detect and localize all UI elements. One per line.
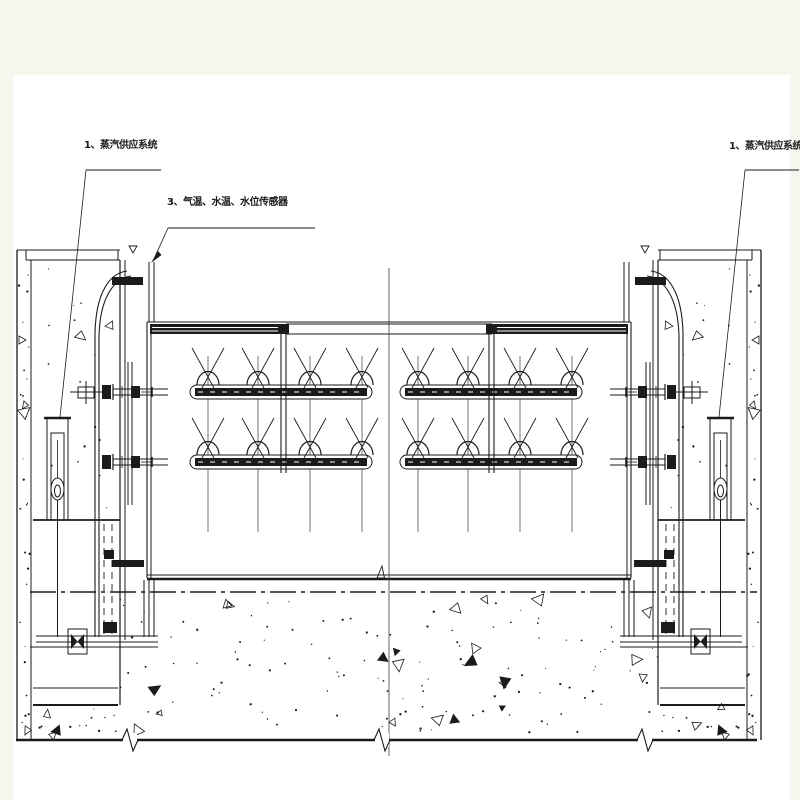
concrete-dot <box>508 668 510 670</box>
concrete-dot <box>211 695 213 697</box>
concrete-dot <box>94 709 95 710</box>
concrete-dot <box>422 690 424 692</box>
concrete-dot <box>510 622 512 624</box>
concrete-dot <box>220 682 222 684</box>
concrete-dot <box>196 663 197 664</box>
concrete-dot <box>451 630 452 631</box>
concrete-dot <box>172 702 173 703</box>
concrete-dot <box>366 631 368 633</box>
concrete-dot <box>648 711 650 713</box>
concrete-dot <box>338 676 339 677</box>
concrete-dot <box>343 674 345 676</box>
label-steam-supply-right: 1、蒸汽供应系统 <box>729 140 800 153</box>
concrete-dot <box>521 674 523 676</box>
concrete-dot <box>342 619 344 621</box>
concrete-dot <box>328 657 330 659</box>
concrete-dot <box>236 658 238 660</box>
pipe-body <box>405 388 577 396</box>
concrete-dot <box>547 724 548 725</box>
concrete-dot <box>196 629 198 631</box>
concrete-dot <box>269 669 271 671</box>
concrete-dot <box>127 672 129 674</box>
concrete-dot <box>545 668 546 669</box>
concrete-dot <box>569 687 571 689</box>
concrete-dot <box>456 641 458 643</box>
steam-header-left <box>150 324 286 334</box>
concrete-dot <box>292 629 294 631</box>
concrete-dot <box>249 664 251 666</box>
feed-tee-joint <box>486 324 497 334</box>
concrete-dot <box>493 626 494 627</box>
concrete-dot <box>601 704 602 705</box>
concrete-dot <box>421 685 423 687</box>
concrete-dot <box>284 663 286 665</box>
concrete-dot <box>472 714 474 716</box>
concrete-dot <box>123 605 124 606</box>
concrete-dot <box>612 641 614 643</box>
concrete-dot <box>295 709 297 711</box>
concrete-dot <box>560 713 562 715</box>
concrete-dot <box>419 727 421 729</box>
concrete-dot <box>364 660 366 662</box>
concrete-dot <box>337 671 338 672</box>
concrete-dot <box>584 697 586 699</box>
concrete-dot <box>327 690 329 692</box>
label-sensors: 3、气温、水温、水位传感器 <box>167 196 287 209</box>
pipe-body <box>405 458 577 466</box>
concrete-dot <box>495 602 497 604</box>
concrete-dot <box>390 634 392 636</box>
concrete-dot <box>611 626 613 628</box>
concrete-dot <box>600 651 601 652</box>
concrete-dot <box>219 692 220 693</box>
concrete-dot <box>145 666 147 668</box>
concrete-dot <box>266 626 268 628</box>
concrete-dot <box>538 618 539 619</box>
concrete-dot <box>235 651 237 653</box>
concrete-dot <box>239 641 241 643</box>
concrete-dot <box>276 724 278 726</box>
concrete-dot <box>711 726 712 727</box>
concrete-dot <box>387 690 389 692</box>
concrete-dot <box>267 602 268 603</box>
concrete-dot <box>378 678 379 679</box>
steam-header-right <box>492 324 628 334</box>
concrete-dot <box>431 729 432 730</box>
concrete-dot <box>518 691 520 693</box>
concrete-dot <box>419 662 420 663</box>
concrete-dot <box>267 718 268 719</box>
concrete-dot <box>251 615 252 616</box>
concrete-dot <box>541 720 543 722</box>
concrete-dot <box>426 625 428 627</box>
concrete-dot <box>288 601 289 602</box>
concrete-dot <box>528 731 530 733</box>
concrete-dot <box>386 718 388 720</box>
feed-tee-joint <box>278 324 289 334</box>
concrete-dot <box>419 730 421 732</box>
concrete-dot <box>170 636 171 637</box>
concrete-dot <box>405 710 407 712</box>
concrete-dot <box>264 640 265 641</box>
concrete-dot <box>446 711 447 712</box>
concrete-dot <box>462 664 463 665</box>
concrete-dot <box>383 680 385 682</box>
concrete-dot <box>593 670 594 671</box>
concrete-dot <box>576 731 578 733</box>
paper-sheet <box>13 75 790 800</box>
concrete-dot <box>428 678 429 679</box>
concrete-dot <box>213 688 215 690</box>
concrete-dot <box>382 726 383 727</box>
concrete-dot <box>141 621 143 623</box>
concrete-dot <box>566 639 567 640</box>
concrete-dot <box>182 621 184 623</box>
concrete-dot <box>147 711 149 713</box>
concrete-dot <box>539 692 540 693</box>
concrete-dot <box>399 713 401 715</box>
concrete-dot <box>520 610 521 611</box>
concrete-dot <box>459 645 461 647</box>
concrete-dot <box>494 695 496 697</box>
concrete-dot <box>85 725 87 727</box>
concrete-dot <box>581 639 583 641</box>
concrete-dot <box>509 714 511 716</box>
concrete-dot <box>350 618 352 620</box>
concrete-dot <box>646 682 648 684</box>
concrete-dot <box>482 710 484 712</box>
concrete-dot <box>322 620 324 622</box>
concrete-dot <box>131 636 133 638</box>
engineering-drawing-canvas: 1、蒸汽供应系统 3、气温、水温、水位传感器 1、蒸汽供应系统 <box>0 0 800 800</box>
concrete-dot <box>376 635 378 637</box>
label-steam-supply-left: 1、蒸汽供应系统 <box>84 139 157 152</box>
concrete-dot <box>537 622 539 624</box>
concrete-dot <box>592 690 594 692</box>
concrete-dot <box>433 611 435 613</box>
concrete-dot <box>595 666 596 667</box>
concrete-dot <box>173 663 175 665</box>
concrete-dot <box>250 703 252 705</box>
concrete-dot <box>538 637 539 638</box>
concrete-dot <box>559 683 561 685</box>
concrete-dot <box>336 715 338 717</box>
concrete-dot <box>402 698 403 699</box>
concrete-dot <box>311 644 312 645</box>
concrete-dot <box>630 670 631 671</box>
concrete-dot <box>604 649 605 650</box>
concrete-dot <box>652 648 653 649</box>
concrete-dot <box>422 706 424 708</box>
concrete-dot <box>262 712 263 713</box>
concrete-dot <box>460 658 462 660</box>
concrete-dot <box>24 661 26 663</box>
drawing-scene <box>0 0 800 800</box>
